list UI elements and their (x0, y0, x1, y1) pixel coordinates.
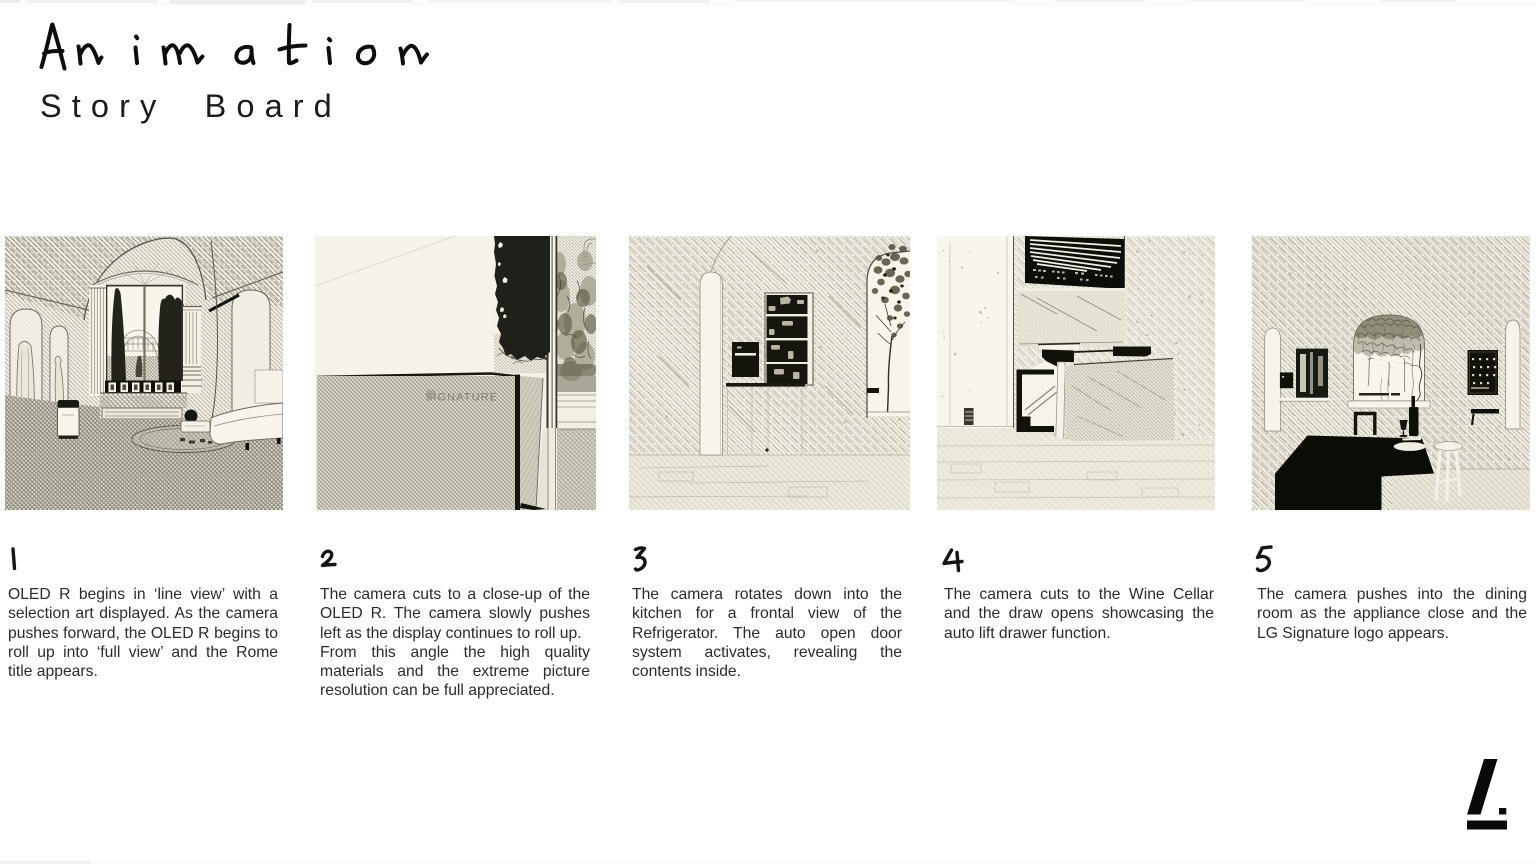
svg-text:SIGNATURE: SIGNATURE (425, 392, 498, 404)
